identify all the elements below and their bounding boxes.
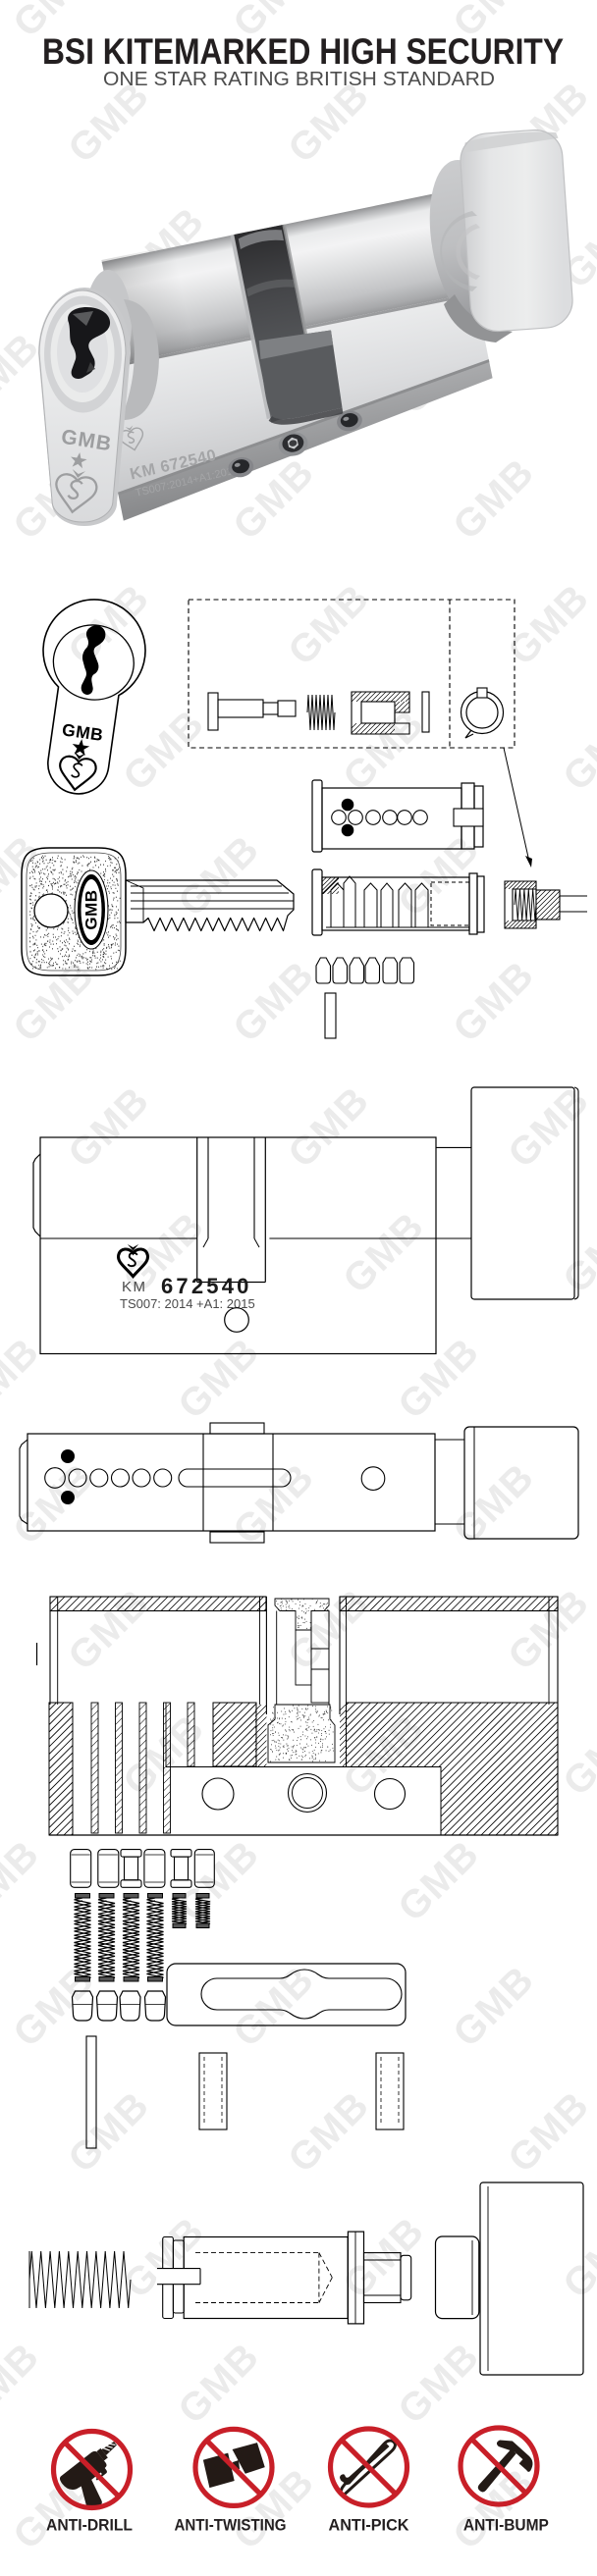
svg-text:BSI KITEMARKED HIGH SECURITY: BSI KITEMARKED HIGH SECURITY: [42, 31, 564, 72]
svg-text:ONE STAR RATING BRITISH STANDA: ONE STAR RATING BRITISH STANDARD: [103, 69, 495, 90]
svg-text:ANTI-PICK: ANTI-PICK: [329, 2517, 409, 2535]
svg-text:TS007: 2014 +A1: 2015: TS007: 2014 +A1: 2015: [120, 1296, 255, 1311]
svg-text:ANTI-TWISTING: ANTI-TWISTING: [175, 2517, 287, 2535]
svg-text:GMB: GMB: [61, 719, 105, 745]
svg-text:ANTI-DRILL: ANTI-DRILL: [46, 2517, 133, 2535]
svg-text:GMB: GMB: [82, 889, 101, 929]
svg-text:ANTI-BUMP: ANTI-BUMP: [463, 2517, 549, 2535]
svg-text:KM: KM: [122, 1279, 147, 1295]
svg-text:672540: 672540: [161, 1274, 252, 1298]
